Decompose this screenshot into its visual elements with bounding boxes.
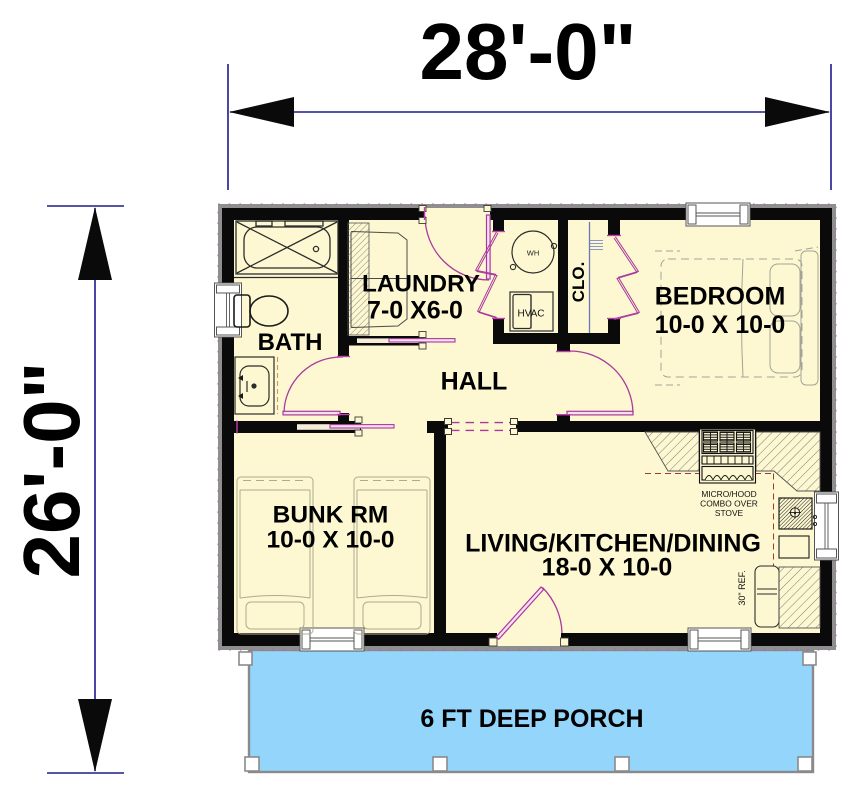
svg-text:6 FT DEEP PORCH: 6 FT DEEP PORCH [420, 705, 643, 733]
svg-text:CLO.: CLO. [569, 262, 588, 303]
svg-text:18-0 X 10-0: 18-0 X 10-0 [542, 554, 673, 582]
svg-text:30" REF.: 30" REF. [737, 570, 747, 605]
svg-text:LAUNDRY: LAUNDRY [362, 271, 480, 298]
svg-text:BUNK RM: BUNK RM [273, 502, 389, 529]
svg-text:WH: WH [527, 249, 540, 258]
svg-text:26'-0": 26'-0" [7, 361, 96, 578]
svg-text:BATH: BATH [258, 329, 323, 356]
svg-text:COMBO OVER: COMBO OVER [700, 499, 758, 509]
svg-text:BEDROOM: BEDROOM [655, 283, 786, 311]
svg-text:STOVE: STOVE [715, 508, 744, 518]
svg-text:MICRO/HOOD: MICRO/HOOD [701, 489, 756, 499]
svg-text:HVAC: HVAC [517, 309, 544, 320]
svg-text:HALL: HALL [441, 368, 508, 396]
svg-text:10-0 X 10-0: 10-0 X 10-0 [655, 311, 786, 339]
svg-text:10-0 X 10-0: 10-0 X 10-0 [266, 527, 394, 554]
svg-text:7-0 X6-0: 7-0 X6-0 [367, 297, 463, 325]
svg-text:28'-0": 28'-0" [419, 7, 636, 96]
